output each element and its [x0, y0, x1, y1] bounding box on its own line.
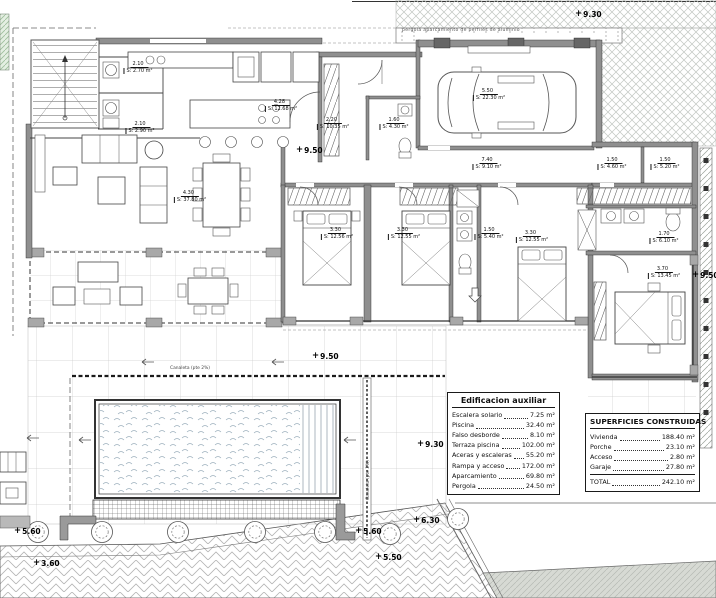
dotted-leader [504, 418, 528, 419]
car [438, 67, 576, 138]
room-label: 1.50S: 5.40 m² [474, 227, 503, 240]
dotted-leader [614, 460, 667, 461]
dimension-value: 9.50 [320, 352, 339, 361]
room-dim: 3.30 [395, 227, 413, 234]
total-label: TOTAL [590, 477, 610, 487]
room-dim: 3.30 [328, 227, 346, 234]
row-value: 102.00 m² [522, 440, 555, 450]
room-area: S: 22.30 m² [473, 95, 505, 101]
room-area: S: 13.45 m² [648, 273, 680, 279]
room-label: 5.50S: 22.30 m² [473, 88, 505, 101]
dotted-leader [612, 485, 660, 486]
room-label: 3.70S: 13.45 m² [648, 266, 680, 279]
dotted-leader [476, 428, 524, 429]
pool-overflow-grille [93, 500, 340, 519]
room-label: 4.28S: 12.68 m² [265, 99, 297, 112]
room-area: S: 9.10 m² [472, 164, 501, 170]
table-row: Aceras y escaleras55.20 m² [452, 450, 555, 460]
room-area: S: 12.56 m² [321, 234, 353, 240]
table-row: Terraza piscina102.00 m² [452, 440, 555, 450]
table-row: Pergola24.50 m² [452, 481, 555, 491]
row-label: Vivienda [590, 432, 618, 442]
room-dim: 3.30 [523, 230, 541, 237]
table-row: Garaje27.80 m² [590, 462, 695, 472]
level-dimension: +5.60 [355, 527, 382, 536]
dimension-value: 9.50 [304, 146, 323, 155]
table-title: Edificacion auxiliar [452, 395, 555, 408]
dimension-value: 5.60 [363, 527, 382, 536]
dotted-leader [614, 450, 664, 451]
dimension-value: 5.50 [383, 553, 402, 562]
row-value: 55.20 m² [526, 450, 555, 460]
room-dim: 2.10 [132, 121, 150, 128]
left-garden-structures [0, 452, 30, 528]
room-dim: 1.50 [657, 157, 675, 164]
table-row: Porche23.10 m² [590, 442, 695, 452]
room-area: S: 37.80 m² [174, 197, 206, 203]
level-dimension: +5.60 [14, 527, 41, 536]
row-value: 8.10 m² [530, 430, 555, 440]
survey-cross-icon: + [296, 146, 303, 155]
survey-cross-icon: + [375, 553, 382, 562]
table-total-row: TOTAL 242.10 m² [590, 474, 695, 487]
row-label: Falso desborde [452, 430, 500, 440]
dimension-value: 3.60 [41, 559, 60, 568]
room-area: S: 2.90 m² [125, 128, 154, 134]
dotted-leader [478, 488, 524, 489]
pergola-note: pergola aparcamiento de perfiles de alum… [402, 28, 520, 33]
room-dim: 1.50 [604, 157, 622, 164]
survey-cross-icon: + [575, 10, 582, 19]
table-row: Escalera solario7.25 m² [452, 410, 555, 420]
room-area: S: 12.55 m² [516, 237, 548, 243]
outdoor-dining-table [188, 278, 228, 304]
room-dim: 1.70 [656, 231, 674, 238]
room-dim: 3.70 [655, 266, 673, 273]
row-value: 69.80 m² [526, 471, 555, 481]
dotted-leader [613, 470, 664, 471]
room-label: 4.30S: 37.80 m² [174, 190, 206, 203]
dimension-value: 9.30 [583, 10, 602, 19]
row-value: 188.40 m² [662, 432, 695, 442]
floor-plan-page: pergola aparcamiento de perfiles de alum… [0, 0, 716, 598]
room-label: 2.10S: 2.70 m² [123, 61, 152, 74]
row-label: Aceras y escaleras [452, 450, 512, 460]
level-dimension: +3.60 [33, 559, 60, 568]
survey-cross-icon: + [33, 559, 40, 568]
dotted-leader [514, 458, 524, 459]
survey-cross-icon: + [312, 352, 319, 361]
room-area: S: 5.40 m² [474, 234, 503, 240]
room-area: S: 12.68 m² [265, 106, 297, 112]
dotted-leader [620, 440, 660, 441]
row-value: 7.25 m² [530, 410, 555, 420]
room-area: S: 10.35 m² [317, 124, 349, 130]
room-area: S: 2.70 m² [123, 68, 152, 74]
survey-cross-icon: + [355, 527, 362, 536]
row-label: Piscina [452, 420, 474, 430]
room-label: 3.30S: 12.55 m² [516, 230, 548, 243]
survey-cross-icon: + [692, 271, 699, 280]
room-dim: 7.40 [479, 157, 497, 164]
table-row: Rampa y acceso172.00 m² [452, 461, 555, 471]
built-surfaces-table: SUPERFICIES CONSTRUIDAS Vivienda188.40 m… [585, 413, 700, 492]
table-row: Acceso2.80 m² [590, 452, 695, 462]
dimension-value: 9.30 [425, 440, 444, 449]
room-area: S: 4.60 m² [597, 164, 626, 170]
dimension-value: 9.50 [700, 271, 716, 280]
row-label: Pergola [452, 481, 476, 491]
level-dimension: +5.50 [375, 553, 402, 562]
level-dimension: +9.50 [692, 271, 716, 280]
dining-table [203, 163, 240, 227]
pool-water [100, 405, 300, 493]
room-label: 3.30S: 12.56 m² [321, 227, 353, 240]
table-row: Falso desborde8.10 m² [452, 430, 555, 440]
dotted-leader [502, 448, 520, 449]
canaleta-label-horizontal: Canaleta (pte 2%) [170, 366, 210, 371]
room-dim: 4.28 [272, 99, 290, 106]
room-label: 1.50S: 5.20 m² [650, 157, 679, 170]
row-label: Escalera solario [452, 410, 502, 420]
table-row: Piscina32.40 m² [452, 420, 555, 430]
room-dim: 2.10 [130, 61, 148, 68]
site-plan-drawing [0, 0, 716, 598]
survey-cross-icon: + [417, 440, 424, 449]
room-dim: 2.20 [324, 117, 342, 124]
row-label: Acceso [590, 452, 612, 462]
room-label: 1.60S: 4.30 m² [379, 117, 408, 130]
room-area: S: 12.55 m² [388, 234, 420, 240]
row-value: 2.80 m² [670, 452, 695, 462]
pool-steps [301, 405, 335, 493]
dimension-value: 6.30 [421, 516, 440, 525]
row-label: Rampa y acceso [452, 461, 504, 471]
room-area: S: 6.10 m² [649, 238, 678, 244]
survey-cross-icon: + [413, 516, 420, 525]
row-label: Terraza piscina [452, 440, 500, 450]
level-dimension: +6.30 [413, 516, 440, 525]
dotted-leader [502, 438, 528, 439]
room-label: 2.20S: 10.35 m² [317, 117, 349, 130]
row-label: Aparcamiento [452, 471, 497, 481]
level-dimension: +9.30 [575, 10, 602, 19]
dotted-leader [499, 478, 524, 479]
dimension-value: 5.60 [22, 527, 41, 536]
room-label: 1.70S: 6.10 m² [649, 231, 678, 244]
room-label: 7.40S: 9.10 m² [472, 157, 501, 170]
canaleta-label-vertical: Canaleta (pte 2%) [366, 460, 371, 500]
level-dimension: +9.50 [312, 352, 339, 361]
total-value: 242.10 m² [662, 477, 695, 487]
room-area: S: 4.30 m² [379, 124, 408, 130]
table-title: SUPERFICIES CONSTRUIDAS [590, 416, 695, 429]
table-rows: Escalera solario7.25 m²Piscina32.40 m²Fa… [452, 410, 555, 491]
dotted-leader [506, 468, 519, 469]
row-label: Garaje [590, 462, 611, 472]
right-boundary-wall [700, 148, 712, 448]
room-dim: 1.50 [481, 227, 499, 234]
table-row: Vivienda188.40 m² [590, 432, 695, 442]
level-dimension: +9.50 [296, 146, 323, 155]
room-label: 2.10S: 2.90 m² [125, 121, 154, 134]
row-value: 23.10 m² [666, 442, 695, 452]
level-dimension: +9.30 [417, 440, 444, 449]
room-dim: 5.50 [480, 88, 498, 95]
survey-cross-icon: + [14, 527, 21, 536]
room-label: 3.30S: 12.55 m² [388, 227, 420, 240]
table-rows: Vivienda188.40 m²Porche23.10 m²Acceso2.8… [590, 432, 695, 472]
room-dim: 4.30 [181, 190, 199, 197]
table-row: Aparcamiento69.80 m² [452, 471, 555, 481]
row-value: 27.80 m² [666, 462, 695, 472]
row-value: 32.40 m² [526, 420, 555, 430]
auxiliary-surfaces-table: Edificacion auxiliar Escalera solario7.2… [447, 392, 560, 495]
room-dim: 1.60 [386, 117, 404, 124]
room-label: 1.50S: 4.60 m² [597, 157, 626, 170]
staircase [31, 40, 99, 128]
room-area: S: 5.20 m² [650, 164, 679, 170]
row-value: 172.00 m² [522, 461, 555, 471]
row-label: Porche [590, 442, 612, 452]
row-value: 24.50 m² [526, 481, 555, 491]
